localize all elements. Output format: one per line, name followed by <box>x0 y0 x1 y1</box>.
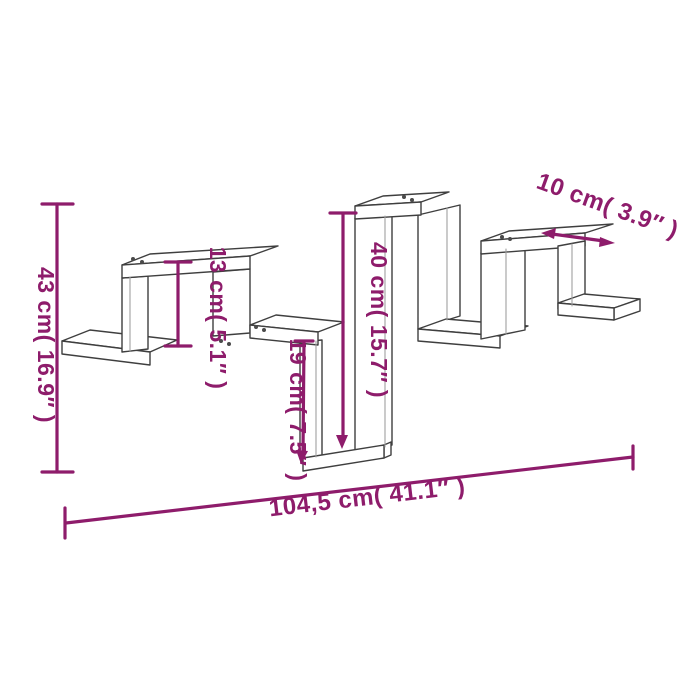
right-u-column <box>481 245 525 339</box>
dim-label-box-height: 13 cm( 5.1″ ) <box>205 247 231 390</box>
dimension-overall-height: 43 cm( 16.9″ ) <box>33 204 73 472</box>
dimension-drop-height: 19 cm( 7.5″ ) <box>285 339 313 482</box>
dimension-shelf-depth: 10 cm( 3.9″ ) <box>533 168 682 247</box>
wall-shelf-dimension-drawing: 43 cm( 16.9″ ) 13 cm( 5.1″ ) 19 cm( 7.5″… <box>0 0 700 700</box>
dim-label-column-height: 40 cm( 15.7″ ) <box>366 242 392 398</box>
dim-label-overall-height: 43 cm( 16.9″ ) <box>33 267 59 423</box>
dimension-diagram-page: 43 cm( 16.9″ ) 13 cm( 5.1″ ) 19 cm( 7.5″… <box>0 0 700 700</box>
tall-right-column <box>418 205 460 329</box>
dim-label-drop-height: 19 cm( 7.5″ ) <box>285 339 311 482</box>
box1-left-board <box>122 276 148 352</box>
